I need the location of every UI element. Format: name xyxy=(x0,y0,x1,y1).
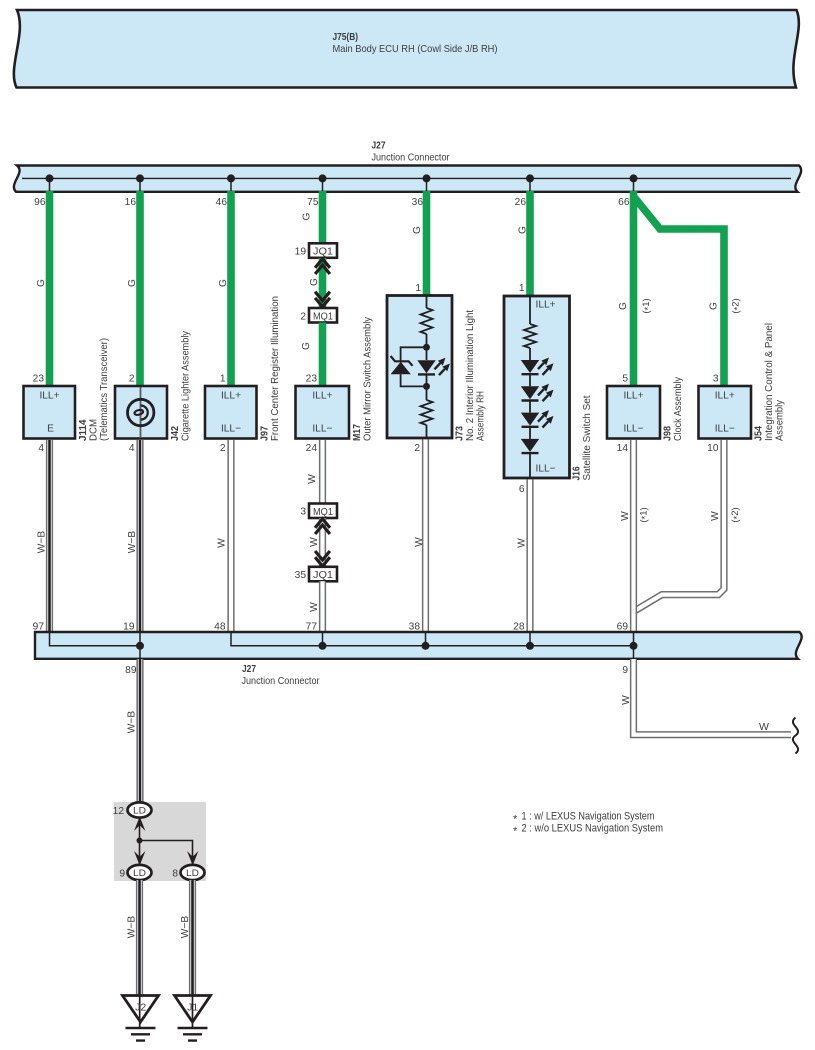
svg-text:MQ1: MQ1 xyxy=(313,311,333,322)
svg-text:W: W xyxy=(516,538,527,548)
svg-text:2: 2 xyxy=(414,443,420,454)
svg-text:1 : w/ LEXUS Navigation System: 1 : w/ LEXUS Navigation System xyxy=(522,811,655,823)
svg-text:LD: LD xyxy=(186,868,199,879)
svg-text:3: 3 xyxy=(300,507,306,518)
svg-text:ILL−: ILL− xyxy=(221,424,241,435)
svg-text:E: E xyxy=(47,424,54,435)
svg-text:9: 9 xyxy=(622,665,628,676)
svg-text:(*1): (*1) xyxy=(641,298,654,313)
svg-text:6: 6 xyxy=(519,484,525,495)
svg-text:ILL+: ILL+ xyxy=(623,391,643,402)
svg-text:*: * xyxy=(513,814,518,826)
svg-text:G: G xyxy=(301,342,312,350)
svg-text:ILL+: ILL+ xyxy=(221,391,241,402)
svg-text:12: 12 xyxy=(113,806,125,817)
svg-text:J42: J42 xyxy=(170,426,181,441)
svg-text:G: G xyxy=(218,279,229,287)
svg-text:8: 8 xyxy=(172,869,178,880)
svg-text:1: 1 xyxy=(415,283,421,294)
svg-text:Cigarette Lighter Assembly: Cigarette Lighter Assembly xyxy=(181,330,192,441)
svg-text:4: 4 xyxy=(129,443,135,454)
svg-text:W: W xyxy=(414,537,425,547)
svg-text:1: 1 xyxy=(519,283,525,294)
svg-text:G: G xyxy=(36,279,47,287)
svg-text:W−B: W−B xyxy=(126,711,137,734)
svg-text:24: 24 xyxy=(306,443,318,454)
svg-text:J27: J27 xyxy=(242,664,256,675)
svg-text:Junction Connector: Junction Connector xyxy=(372,153,451,164)
svg-text:J2: J2 xyxy=(135,1002,146,1014)
svg-text:23: 23 xyxy=(33,374,45,385)
svg-text:W−B: W−B xyxy=(126,916,137,939)
svg-text:Satellite Switch Set: Satellite Switch Set xyxy=(582,395,593,480)
svg-text:14: 14 xyxy=(617,443,629,454)
svg-text:Outer Mirror Switch Assembly: Outer Mirror Switch Assembly xyxy=(363,316,374,441)
svg-text:ILL−: ILL− xyxy=(312,424,332,435)
svg-text:W: W xyxy=(621,695,632,705)
svg-text:J73: J73 xyxy=(455,426,466,441)
svg-text:Clock Assembly: Clock Assembly xyxy=(673,376,684,441)
svg-text:Assembly RH: Assembly RH xyxy=(476,391,487,441)
svg-text:ILL−: ILL− xyxy=(715,424,735,435)
svg-text:2: 2 xyxy=(300,311,306,322)
svg-text:2 : w/o LEXUS Navigation Syste: 2 : w/o LEXUS Navigation System xyxy=(522,823,664,835)
svg-text:No. 2 Interior Illumination Li: No. 2 Interior Illumination Light xyxy=(465,310,476,441)
svg-text:W: W xyxy=(759,721,769,733)
svg-text:(Telematics Transceiver): (Telematics Transceiver) xyxy=(99,338,110,441)
svg-text:W: W xyxy=(307,474,318,484)
svg-text:G: G xyxy=(127,279,138,287)
svg-text:36: 36 xyxy=(412,197,424,208)
svg-text:1: 1 xyxy=(220,374,226,385)
svg-text:23: 23 xyxy=(306,374,318,385)
svg-text:W: W xyxy=(710,511,721,521)
svg-text:W: W xyxy=(216,538,227,548)
svg-text:*: * xyxy=(513,826,518,838)
svg-text:46: 46 xyxy=(216,197,228,208)
svg-text:89: 89 xyxy=(125,665,137,676)
svg-text:96: 96 xyxy=(34,197,46,208)
svg-text:LD: LD xyxy=(133,806,146,817)
svg-text:JQ1: JQ1 xyxy=(313,247,333,258)
svg-text:2: 2 xyxy=(129,374,135,385)
svg-text:ILL−: ILL− xyxy=(623,424,643,435)
svg-text:J27: J27 xyxy=(372,141,386,152)
svg-text:9: 9 xyxy=(119,869,125,880)
svg-text:J16: J16 xyxy=(572,466,583,480)
svg-text:DCM: DCM xyxy=(89,419,100,441)
svg-text:16: 16 xyxy=(125,197,137,208)
svg-text:4: 4 xyxy=(38,443,44,454)
svg-text:Front Center Register Illumina: Front Center Register Illumination xyxy=(270,296,281,441)
svg-text:W−B: W−B xyxy=(180,916,191,939)
svg-text:Junction Connector: Junction Connector xyxy=(242,676,321,687)
svg-text:G: G xyxy=(309,278,320,286)
svg-text:ILL−: ILL− xyxy=(536,464,556,475)
svg-text:3: 3 xyxy=(713,374,719,385)
svg-text:26: 26 xyxy=(515,197,527,208)
svg-text:J54: J54 xyxy=(754,426,765,441)
svg-text:W−B: W−B xyxy=(36,531,47,554)
svg-text:MQ1: MQ1 xyxy=(313,507,333,518)
svg-text:G: G xyxy=(412,226,423,234)
svg-text:(*2): (*2) xyxy=(731,298,744,313)
svg-text:G: G xyxy=(517,226,528,234)
svg-text:5: 5 xyxy=(622,374,628,385)
svg-text:ILL+: ILL+ xyxy=(312,391,332,402)
svg-text:LD: LD xyxy=(133,868,146,879)
svg-text:J114: J114 xyxy=(78,419,89,441)
svg-text:M17: M17 xyxy=(352,424,363,441)
svg-text:G: G xyxy=(301,212,312,220)
svg-text:G: G xyxy=(708,302,719,310)
svg-text:J1: J1 xyxy=(187,1002,198,1014)
svg-text:JQ1: JQ1 xyxy=(313,570,333,581)
svg-text:ILL+: ILL+ xyxy=(715,391,735,402)
svg-text:Main Body ECU RH (Cowl Side J/: Main Body ECU RH (Cowl Side J/B RH) xyxy=(333,44,498,55)
svg-text:ILL+: ILL+ xyxy=(39,391,59,402)
svg-text:W−B: W−B xyxy=(127,531,138,554)
svg-text:W: W xyxy=(620,511,631,521)
svg-text:75: 75 xyxy=(307,197,319,208)
svg-text:J97: J97 xyxy=(260,426,271,441)
svg-text:J75(B): J75(B) xyxy=(333,32,359,43)
svg-text:W: W xyxy=(309,537,320,547)
svg-text:Assembly: Assembly xyxy=(775,399,786,441)
svg-text:35: 35 xyxy=(295,570,307,581)
svg-text:66: 66 xyxy=(618,197,630,208)
svg-text:Integration Control & Panel: Integration Control & Panel xyxy=(764,323,775,441)
svg-text:W: W xyxy=(309,602,320,612)
svg-text:G: G xyxy=(618,302,629,310)
svg-text:(*1): (*1) xyxy=(638,507,651,522)
svg-text:J98: J98 xyxy=(663,426,674,441)
svg-text:(*2): (*2) xyxy=(730,507,743,522)
svg-text:19: 19 xyxy=(295,247,307,258)
svg-text:ILL+: ILL+ xyxy=(536,300,556,311)
svg-text:10: 10 xyxy=(707,443,719,454)
svg-text:2: 2 xyxy=(220,443,226,454)
